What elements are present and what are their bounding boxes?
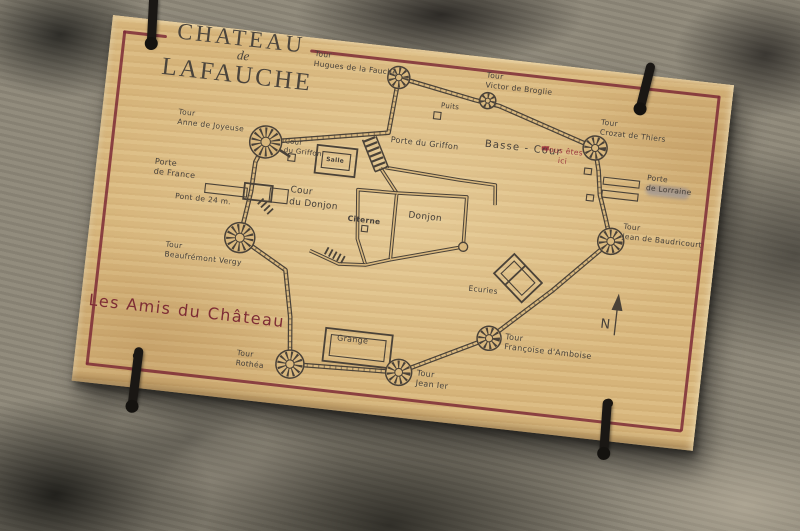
mounting-hook-top-left: [147, 0, 159, 46]
inner-wall: [383, 168, 498, 206]
citerne-marker: [361, 225, 368, 232]
tour-rothea-label: Tour Rothéa: [235, 348, 265, 371]
puits-marker: [433, 112, 441, 120]
tour-crozat-de-thiers-tower: [582, 135, 609, 162]
donjon-turret: [458, 242, 468, 252]
compass-n-label: N: [599, 317, 611, 335]
buttress: [586, 194, 594, 201]
tour-rothea-tower: [274, 349, 305, 380]
buttress: [584, 168, 592, 175]
gatehouse: [243, 183, 273, 202]
ecuries-building: [494, 254, 542, 302]
chateau-map-sign-board: CHATEAU de LAFAUCHE Les Amis du Château …: [72, 15, 734, 451]
grange-building: [322, 328, 392, 368]
donjon-walls: [389, 189, 469, 268]
tour-anne-de-joyeuse-tower: [248, 124, 283, 159]
tour-jean-ier-tower: [384, 358, 413, 387]
stone-wall-photo: CHATEAU de LAFAUCHE Les Amis du Château …: [0, 0, 800, 531]
tour-jean-label: Tour Jean Ier: [415, 368, 450, 392]
porte-de-lorraine-gate: [603, 177, 640, 188]
north-arrow: [609, 293, 625, 336]
puits-label: Puits: [440, 101, 459, 112]
